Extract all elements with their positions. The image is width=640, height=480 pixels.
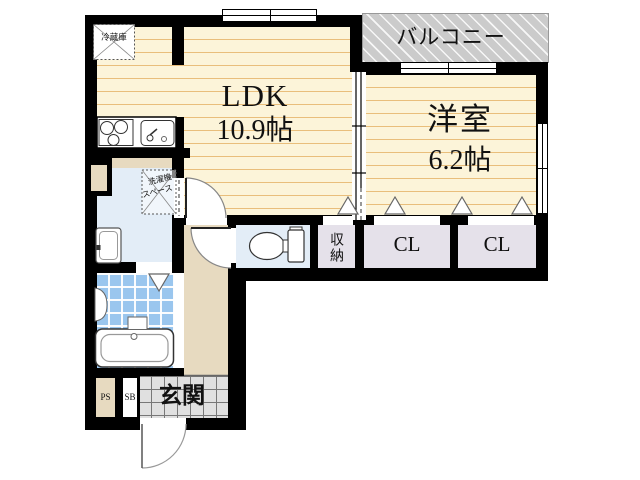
bathroom-door-opening <box>136 262 172 273</box>
wall-segment <box>228 268 548 281</box>
wall-segment <box>140 368 184 376</box>
wall-segment <box>355 225 364 268</box>
duct-box <box>90 164 108 192</box>
closet-left-label: CL <box>364 234 450 255</box>
sliding-partition <box>352 72 366 220</box>
wall-segment <box>172 25 184 65</box>
entrance-door-icon <box>142 424 186 468</box>
western-room-size-label: 6.2帖 <box>386 147 534 175</box>
refrigerator-label: 冷蔵庫 <box>92 33 136 42</box>
washroom-sliding-door <box>174 178 184 218</box>
ldk-label: LDK <box>180 80 330 111</box>
window-right <box>537 123 548 214</box>
floor-plan: LDK 10.9帖 洋室 6.2帖 バルコニー CL CL 収納 玄関 PS S… <box>0 0 640 480</box>
window-balcony <box>400 62 497 74</box>
shoe-box-label: SB <box>122 393 138 402</box>
ldk-door-opening <box>186 215 227 225</box>
toilet-floor <box>236 225 310 268</box>
bathroom-floor <box>95 273 174 368</box>
entrance-door-opening <box>140 418 186 430</box>
toilet-door-opening <box>228 228 236 263</box>
wall-segment <box>350 15 362 72</box>
closet-left-opening <box>374 216 440 225</box>
balcony-label: バルコニー <box>376 27 526 48</box>
entrance-label: 玄関 <box>138 384 226 407</box>
pipe-space-label: PS <box>95 393 116 402</box>
window-top <box>222 9 317 22</box>
storage-label: 収納 <box>328 228 342 268</box>
wall-segment <box>85 15 97 428</box>
wall-segment <box>228 281 246 428</box>
wall-segment <box>310 225 318 268</box>
closet-right-opening <box>468 216 534 225</box>
western-room-label: 洋室 <box>386 104 534 135</box>
wall-segment <box>450 225 458 268</box>
closet-right-label: CL <box>458 234 536 255</box>
hallway-floor <box>184 225 228 376</box>
wall-segment <box>85 148 190 158</box>
ldk-size-label: 10.9帖 <box>180 117 330 145</box>
storage-opening <box>323 216 353 225</box>
